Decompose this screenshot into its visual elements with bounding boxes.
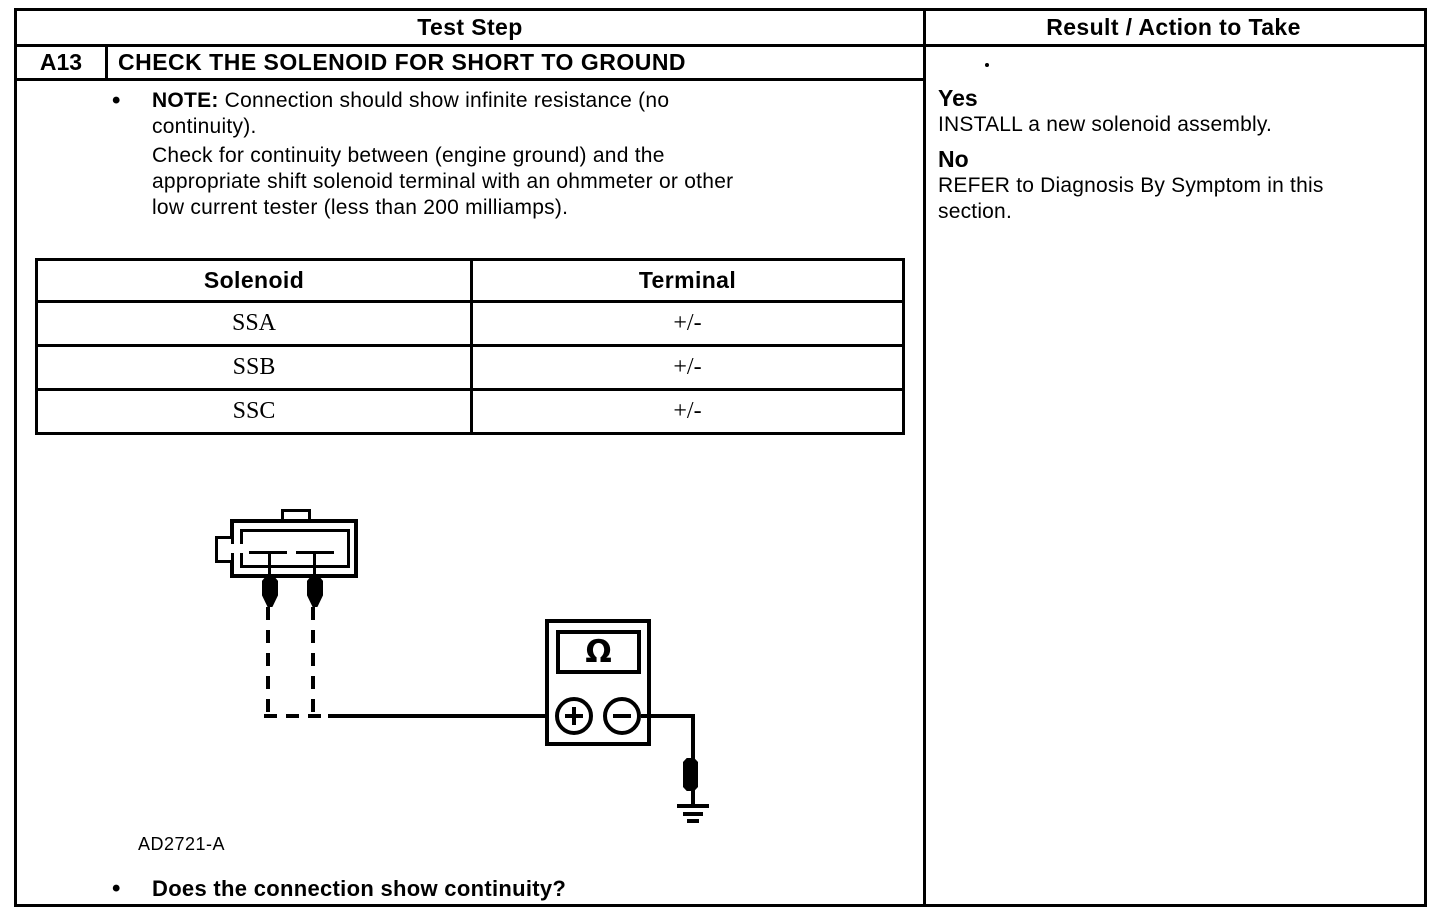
table-header-row: Test Step Result / Action to Take <box>17 11 1424 47</box>
solenoid-cell: SSB <box>37 346 472 390</box>
solenoid-cell: SSA <box>37 302 472 346</box>
test-lead-wire <box>328 714 562 718</box>
step-title: CHECK THE SOLENOID FOR SHORT TO GROUND <box>108 49 686 76</box>
table-row-ssa: SSA +/- <box>37 302 904 346</box>
no-result-group: No REFER to Diagnosis By Symptom in this… <box>938 146 1412 225</box>
solenoid-cell: SSC <box>37 390 472 434</box>
test-step-header-cell: Test Step <box>17 11 923 44</box>
table-row-ssb: SSB +/- <box>37 346 904 390</box>
ground-symbol-bar-3 <box>687 819 699 823</box>
ground-symbol-bar-2 <box>683 812 703 816</box>
terminal-cell: +/- <box>472 390 904 434</box>
note-paragraph: NOTE: Connection should show infinite re… <box>152 88 892 140</box>
dashed-lead-horizontal <box>264 714 328 718</box>
figure-id: AD2721-A <box>138 834 225 855</box>
yes-result-group: Yes INSTALL a new solenoid assembly. <box>938 85 1412 138</box>
no-label: No <box>938 146 1412 173</box>
solenoid-table-header-row: Solenoid Terminal <box>37 260 904 302</box>
terminal-stem-right <box>313 551 316 578</box>
ground-symbol-bar-1 <box>677 804 709 808</box>
pinpoint-test-table: Test Step Result / Action to Take A13 CH… <box>14 8 1427 907</box>
question-text: Does the connection show continuity? <box>152 876 566 902</box>
note-text: Connection should show infinite resistan… <box>152 89 669 138</box>
terminal-pin-right <box>307 578 323 607</box>
terminal-pin-left <box>262 578 278 607</box>
table-row-ssc: SSC +/- <box>37 390 904 434</box>
omega-symbol: Ω <box>585 634 611 670</box>
ohmmeter-display: Ω <box>556 630 641 674</box>
terminal-column-header: Terminal <box>472 260 904 302</box>
probe-tip <box>683 758 698 791</box>
dashed-lead-left <box>266 607 270 718</box>
instruction-paragraph: Check for continuity between (engine gro… <box>152 143 892 221</box>
note-bullet: • <box>112 90 120 112</box>
test-step-cell: • NOTE: Connection should show infinite … <box>17 81 923 904</box>
terminal-stem-left <box>268 551 271 578</box>
plus-terminal-icon <box>555 697 593 735</box>
solenoid-terminal-table: Solenoid Terminal SSA +/- SSB +/- SSC +/… <box>35 258 905 435</box>
result-action-header: Result / Action to Take <box>1046 14 1301 41</box>
note-label: NOTE: <box>152 89 219 112</box>
terminal-cell: +/- <box>472 346 904 390</box>
dashed-lead-right <box>311 607 315 712</box>
minus-terminal-icon <box>603 697 641 735</box>
solenoid-column-header: Solenoid <box>37 260 472 302</box>
question-bullet: • <box>112 878 120 900</box>
no-action: REFER to Diagnosis By Symptom in this se… <box>938 173 1412 225</box>
ground-lead-wire <box>641 714 695 718</box>
step-id: A13 <box>17 47 108 78</box>
test-step-header: Test Step <box>417 14 522 41</box>
yes-action: INSTALL a new solenoid assembly. <box>938 112 1412 138</box>
step-title-row: A13 CHECK THE SOLENOID FOR SHORT TO GROU… <box>17 47 923 81</box>
yes-label: Yes <box>938 85 1412 112</box>
result-action-cell: Yes INSTALL a new solenoid assembly. No … <box>926 47 1424 904</box>
terminal-cell: +/- <box>472 302 904 346</box>
result-action-header-cell: Result / Action to Take <box>923 11 1424 44</box>
